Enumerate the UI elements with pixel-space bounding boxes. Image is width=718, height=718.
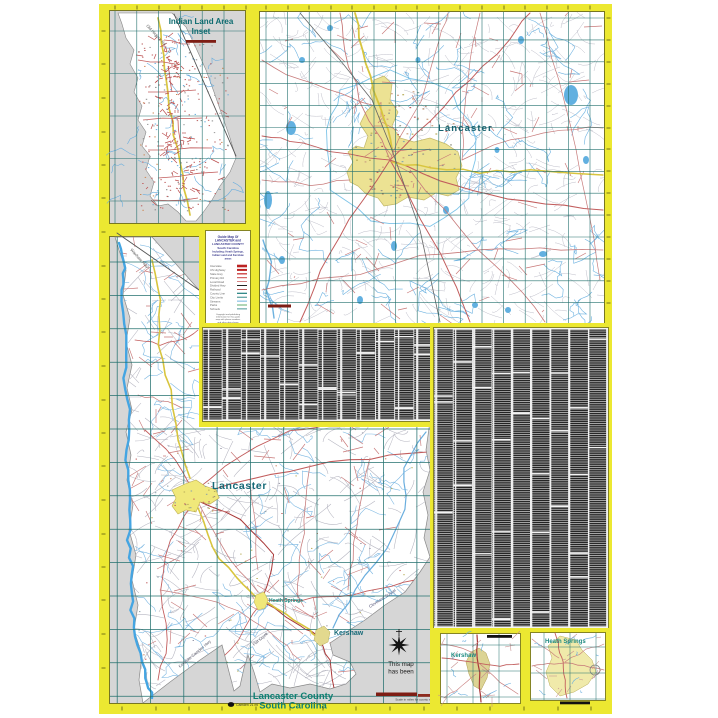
svg-text:Kershaw: Kershaw [451,653,476,659]
svg-text:Scale in miles for county map: Scale in miles for county map [395,698,435,702]
svg-text:South Carolina: South Carolina [217,246,239,250]
svg-text:Camden 21 mi: Camden 21 mi [236,703,258,707]
svg-text:South Carolina: South Carolina [259,701,327,712]
svg-text:Indian Land Area: Indian Land Area [169,17,234,26]
svg-text:has been: has been [388,669,414,676]
svg-text:areas: areas [225,257,232,261]
svg-text:Lancaster: Lancaster [212,480,267,492]
svg-text:Schools: Schools [210,307,221,311]
svg-text:Heath Springs: Heath Springs [545,639,586,645]
svg-text:This map: This map [388,661,414,668]
svg-text:Indian Land and Kershaw: Indian Land and Kershaw [212,253,244,257]
svg-text:Heath Springs: Heath Springs [269,598,303,604]
svg-text:Copyright and publishing: Copyright and publishing [216,313,241,316]
svg-text:Lancaster: Lancaster [438,123,493,134]
svg-text:map with phone numbers: map with phone numbers [216,318,241,321]
svg-text:Inset: Inset [192,27,211,36]
svg-text:Kershaw: Kershaw [334,630,364,637]
svg-text:information for this guide: information for this guide [216,316,241,319]
svg-text:Including: Heath Springs,: Including: Heath Springs, [212,249,244,253]
